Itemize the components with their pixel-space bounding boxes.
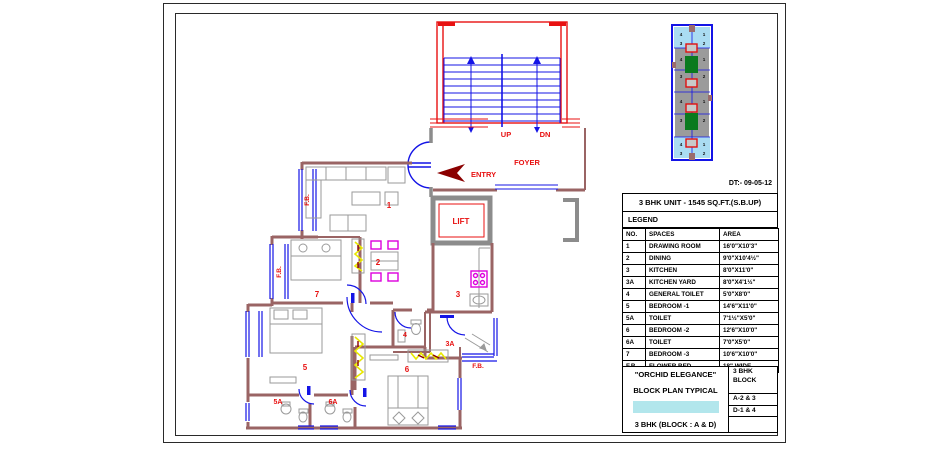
lift-lobby-wall <box>563 200 577 240</box>
entry-label: ENTRY <box>471 170 496 179</box>
legend-col-no: NO. <box>623 229 646 241</box>
legend-row: 5A TOILET 7'1½"X5'0" <box>623 313 779 325</box>
room-label-bedroom2: 6 <box>405 365 410 374</box>
room-label-toilet-6a: 6A <box>329 399 338 406</box>
legend-cell-no: 6 <box>623 325 646 337</box>
legend-cell-no: 5A <box>623 313 646 325</box>
block-empty-cell <box>729 417 777 432</box>
block-d-cell: D-1 & 4 <box>729 406 777 418</box>
entry-door <box>408 142 431 188</box>
legend-cell-no: 3 <box>623 265 646 277</box>
legend-cell-no: 6A <box>623 337 646 349</box>
bed-bedroom2 <box>388 376 428 425</box>
legend-cell-space: KITCHEN <box>646 265 720 277</box>
legend-cell-space: DINING <box>646 253 720 265</box>
svg-text:4: 4 <box>680 99 683 104</box>
magenta-fixtures <box>371 241 487 287</box>
lift-label: LIFT <box>453 217 470 226</box>
svg-text:2: 2 <box>703 118 706 123</box>
legend-cell-no: 2 <box>623 253 646 265</box>
legend-cell-area: 10'6"X10'0" <box>720 349 779 361</box>
legend-title: LEGEND <box>622 212 778 228</box>
foyer-label: FOYER <box>514 158 540 167</box>
project-title: "ORCHID ELEGANCE" <box>635 370 716 379</box>
svg-text:2: 2 <box>703 151 706 156</box>
fb-label-1: F.B. <box>304 194 311 206</box>
key-plan-court-1 <box>685 56 698 73</box>
sofa-set <box>306 167 405 231</box>
legend-cell-area: 9'0"X10'4½" <box>720 253 779 265</box>
legend-row: 6 BEDROOM -2 12'6"X10'0" <box>623 325 779 337</box>
highlight-swatch <box>633 401 719 413</box>
staircase: UP DN <box>430 22 580 139</box>
stair-up-label: UP <box>501 130 511 139</box>
legend-header-row: NO. SPACES AREA <box>623 229 779 241</box>
svg-text:3: 3 <box>680 151 683 156</box>
legend-row: 6A TOILET 7'0"X5'0" <box>623 337 779 349</box>
project-subtitle: BLOCK PLAN TYPICAL <box>633 386 717 395</box>
title-block-blocks: 3 BHK BLOCK A-2 & 3 D-1 & 4 <box>729 367 777 432</box>
svg-text:1: 1 <box>703 57 706 62</box>
legend-col-area: AREA <box>720 229 779 241</box>
svg-text:1: 1 <box>703 99 706 104</box>
room-label-toilet-5a: 5A <box>274 399 283 406</box>
legend-cell-no: 1 <box>623 241 646 253</box>
svg-text:2: 2 <box>703 41 706 46</box>
legend-table: NO. SPACES AREA 1 DRAWING ROOM 16'0"X10'… <box>622 228 779 373</box>
legend-cell-area: 5'0"X8'0" <box>720 289 779 301</box>
svg-text:1: 1 <box>703 32 706 37</box>
legend-row: 4 GENERAL TOILET 5'0"X8'0" <box>623 289 779 301</box>
plan-name: 3 BHK (BLOCK : A & D) <box>635 420 717 429</box>
room-label-dining: 2 <box>376 258 381 267</box>
drawing-sheet: UP DN FOYER ENTRY LIFT <box>0 0 950 450</box>
entry-arrow-icon <box>437 164 465 182</box>
svg-text:4: 4 <box>680 142 683 147</box>
title-block: "ORCHID ELEGANCE" BLOCK PLAN TYPICAL 3 B… <box>622 366 778 433</box>
legend-row: 3 KITCHEN 8'0"X11'0" <box>623 265 779 277</box>
room-label-kitchen: 3 <box>456 290 461 299</box>
title-block-main: "ORCHID ELEGANCE" BLOCK PLAN TYPICAL 3 B… <box>623 367 729 432</box>
legend-cell-space: TOILET <box>646 313 720 325</box>
legend-cell-area: 7'0"X5'0" <box>720 337 779 349</box>
svg-text:2: 2 <box>703 74 706 79</box>
legend-row: 2 DINING 9'0"X10'4½" <box>623 253 779 265</box>
legend-cell-space: BEDROOM -2 <box>646 325 720 337</box>
svg-text:3: 3 <box>680 118 683 123</box>
block-type-line2: BLOCK <box>733 377 756 384</box>
fb-label-2: F.B. <box>276 266 283 278</box>
legend-row: 1 DRAWING ROOM 16'0"X10'3" <box>623 241 779 253</box>
legend-cell-no: 3A <box>623 277 646 289</box>
legend-cell-space: BEDROOM -1 <box>646 301 720 313</box>
cad-canvas: UP DN FOYER ENTRY LIFT <box>0 0 950 450</box>
legend-cell-no: 4 <box>623 289 646 301</box>
legend-cell-area: 16'0"X10'3" <box>720 241 779 253</box>
block-a-cell: A-2 & 3 <box>729 394 777 406</box>
legend-row: 3A KITCHEN YARD 8'0"X4'1½" <box>623 277 779 289</box>
legend-cell-area: 8'0"X11'0" <box>720 265 779 277</box>
bed-bedroom3 <box>291 240 341 280</box>
svg-text:4: 4 <box>680 32 683 37</box>
legend-cell-space: BEDROOM -3 <box>646 349 720 361</box>
room-label-general-toilet: 4 <box>403 332 407 339</box>
legend-row: 5 BEDROOM -1 14'6"X11'0" <box>623 301 779 313</box>
svg-text:3: 3 <box>680 41 683 46</box>
legend-cell-no: 5 <box>623 301 646 313</box>
dresser <box>370 355 398 360</box>
stair-dn-label: DN <box>540 130 551 139</box>
legend-panel: 3 BHK UNIT - 1545 SQ.FT.(S.B.UP) LEGEND … <box>622 193 778 373</box>
legend-col-spaces: SPACES <box>646 229 720 241</box>
legend-row: 7 BEDROOM -3 10'6"X10'0" <box>623 349 779 361</box>
foyer-entry: FOYER ENTRY <box>408 128 585 197</box>
legend-cell-space: DRAWING ROOM <box>646 241 720 253</box>
room-label-drawing: 1 <box>387 201 392 210</box>
svg-text:3: 3 <box>680 74 683 79</box>
legend-cell-area: 7'1½"X5'0" <box>720 313 779 325</box>
room-label-bedroom3: 7 <box>315 290 320 299</box>
lift: LIFT <box>433 198 577 243</box>
flower-bed-hatch <box>465 334 490 352</box>
key-plan-court-2 <box>685 113 698 130</box>
block-type-cell: 3 BHK BLOCK <box>729 367 777 394</box>
key-plan: 4 1 3 2 4 1 3 2 4 1 3 2 4 1 3 2 <box>672 25 712 160</box>
legend-cell-space: TOILET <box>646 337 720 349</box>
svg-text:1: 1 <box>703 142 706 147</box>
room-label-kitchen-yard: 3A <box>446 341 455 348</box>
legend-cell-area: 8'0"X4'1½" <box>720 277 779 289</box>
unit-title: 3 BHK UNIT - 1545 SQ.FT.(S.B.UP) <box>622 193 778 212</box>
bed-bedroom1 <box>270 308 322 383</box>
legend-cell-space: GENERAL TOILET <box>646 289 720 301</box>
legend-cell-no: 7 <box>623 349 646 361</box>
sheet-date: DT:- 09-05-12 <box>622 180 778 192</box>
svg-text:4: 4 <box>680 57 683 62</box>
windows <box>246 169 497 429</box>
legend-cell-space: KITCHEN YARD <box>646 277 720 289</box>
legend-cell-area: 12'6"X10'0" <box>720 325 779 337</box>
room-label-bedroom1: 5 <box>303 363 308 372</box>
fb-label-3: F.B. <box>472 363 484 370</box>
block-type-line1: 3 BHK <box>733 368 753 375</box>
legend-cell-area: 14'6"X11'0" <box>720 301 779 313</box>
